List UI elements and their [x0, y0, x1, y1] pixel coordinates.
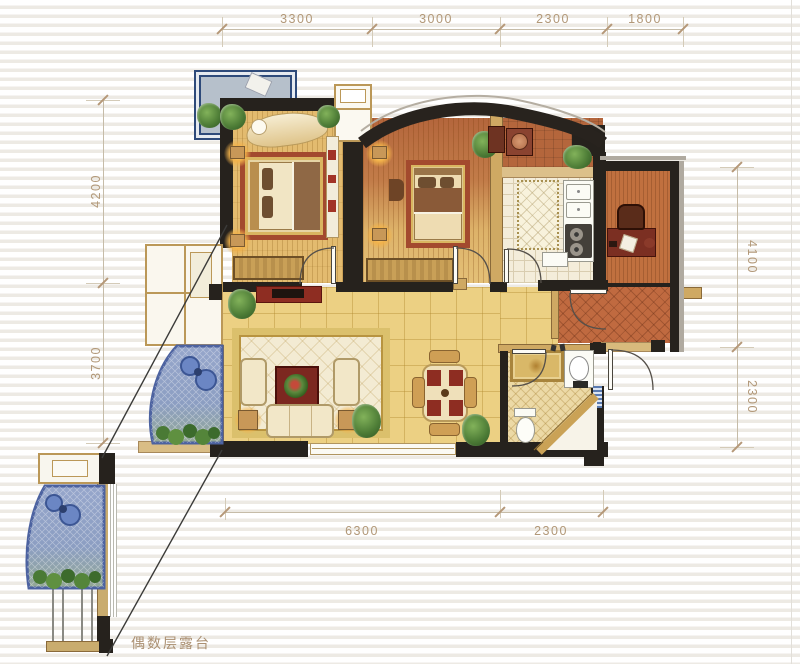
door-arc-study	[570, 293, 606, 329]
leader-line	[107, 450, 222, 656]
door-arc-entry	[611, 350, 653, 390]
terrace-note-label: 偶数层露台	[131, 633, 271, 651]
door-arc-bedroom1	[300, 248, 334, 284]
floor-plan-canvas: 3300 3000 2300 1800 4200 3700 4100 2300 …	[0, 0, 800, 664]
door-arcs	[300, 248, 653, 390]
door-arc-bedroom2	[456, 248, 490, 284]
door-arc-kitchen	[507, 249, 541, 283]
door-arc-bathroom	[512, 352, 546, 386]
plan-overlay	[0, 0, 800, 664]
